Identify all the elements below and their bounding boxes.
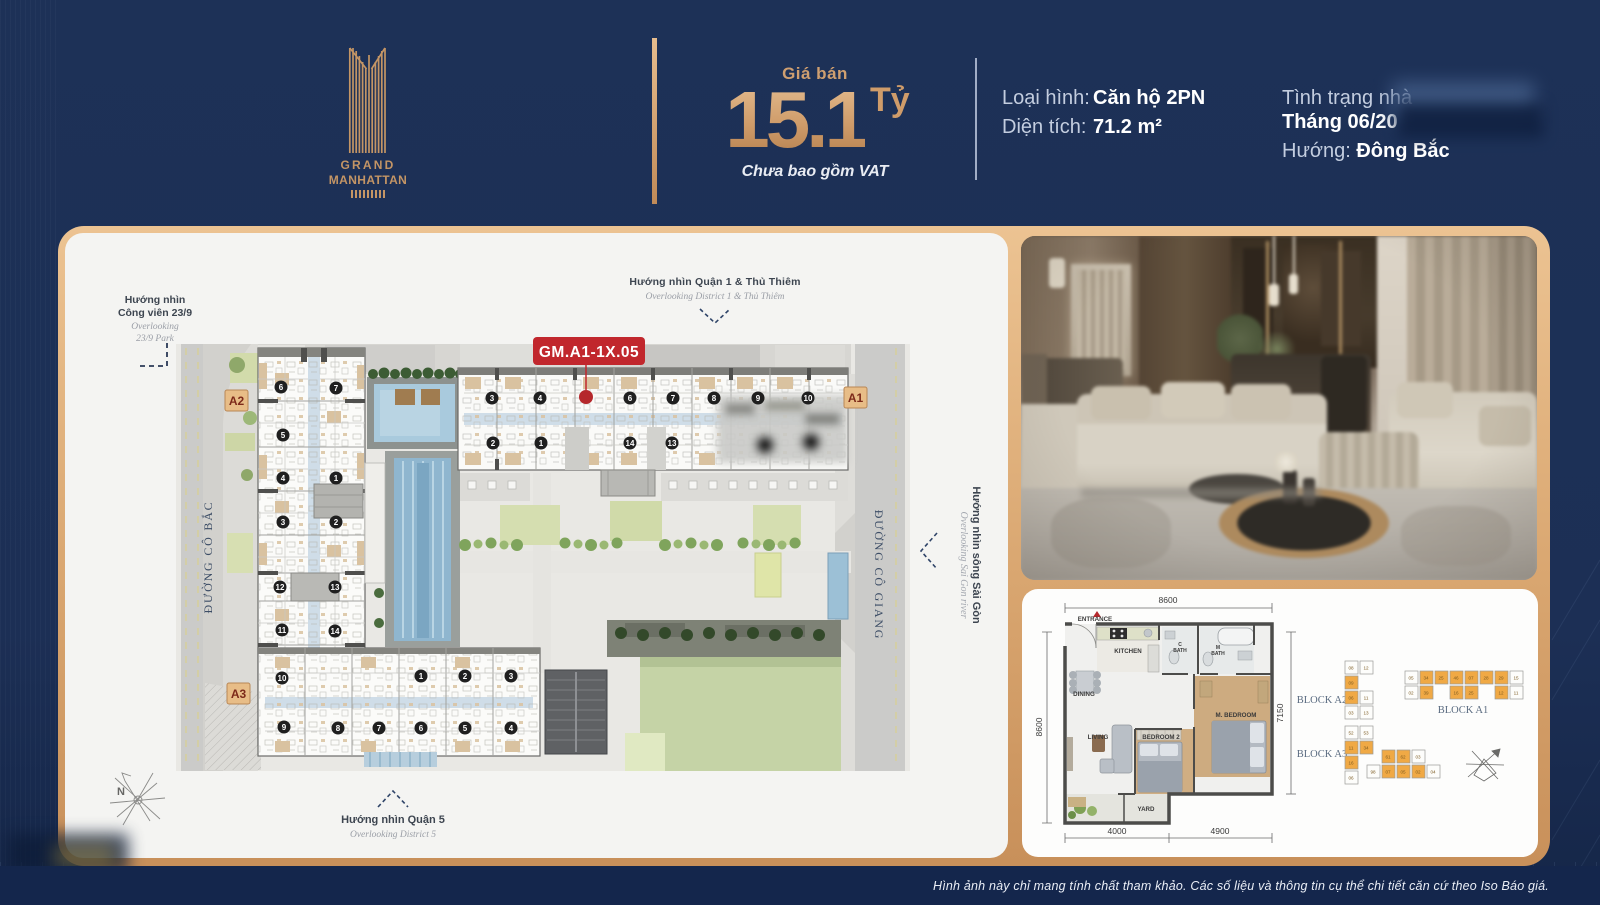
- svg-text:3: 3: [281, 518, 286, 527]
- svg-text:61: 61: [1385, 755, 1391, 760]
- svg-text:28: 28: [1483, 676, 1489, 681]
- svg-text:07: 07: [1385, 770, 1391, 775]
- svg-text:11: 11: [278, 626, 287, 635]
- svg-text:4: 4: [281, 474, 286, 483]
- svg-text:9: 9: [756, 394, 761, 403]
- svg-text:04: 04: [1430, 770, 1436, 775]
- svg-text:1: 1: [539, 439, 544, 448]
- svg-text:62: 62: [1400, 755, 1406, 760]
- svg-text:05: 05: [1408, 676, 1414, 681]
- svg-text:4: 4: [509, 724, 514, 733]
- svg-text:52: 52: [1348, 731, 1354, 736]
- svg-text:4900: 4900: [1211, 826, 1230, 836]
- svg-text:4000: 4000: [1108, 826, 1127, 836]
- svg-text:Hướng nhìn Quận 1 & Thủ Thiêm: Hướng nhìn Quận 1 & Thủ Thiêm: [629, 276, 800, 288]
- svg-text:11: 11: [1364, 696, 1369, 701]
- svg-text:Overlooking District 1 & Thủ T: Overlooking District 1 & Thủ Thiêm: [645, 292, 784, 302]
- svg-text:8: 8: [336, 724, 341, 733]
- svg-text:Overlooking: Overlooking: [131, 322, 179, 332]
- svg-text:ĐƯỜNG CÔ GIANG: ĐƯỜNG CÔ GIANG: [872, 510, 886, 641]
- svg-text:1: 1: [419, 672, 424, 681]
- svg-text:12: 12: [1498, 691, 1504, 696]
- svg-text:GRAND: GRAND: [341, 158, 396, 172]
- svg-text:13: 13: [331, 583, 340, 592]
- svg-text:A1: A1: [848, 391, 864, 405]
- svg-text:13: 13: [668, 439, 677, 448]
- svg-text:M. BEDROOM: M. BEDROOM: [1216, 712, 1257, 719]
- svg-text:53: 53: [1363, 731, 1369, 736]
- svg-text:02: 02: [1415, 770, 1421, 775]
- svg-text:GM.A1-1X.05: GM.A1-1X.05: [539, 344, 639, 361]
- svg-text:Hướng nhìn Quận 5: Hướng nhìn Quận 5: [341, 814, 445, 826]
- svg-text:6: 6: [419, 724, 424, 733]
- svg-text:Hướng nhìn: Hướng nhìn: [125, 294, 186, 306]
- svg-text:16: 16: [1453, 691, 1459, 696]
- svg-text:BATH: BATH: [1211, 651, 1225, 657]
- svg-text:N: N: [117, 786, 125, 798]
- svg-text:39: 39: [1423, 691, 1429, 696]
- svg-text:3: 3: [490, 394, 495, 403]
- svg-text:3: 3: [509, 672, 514, 681]
- svg-text:BATH: BATH: [1173, 648, 1187, 654]
- svg-text:Công viên 23/9: Công viên 23/9: [118, 307, 192, 319]
- svg-text:BLOCK A3: BLOCK A3: [1297, 749, 1347, 760]
- svg-text:10: 10: [278, 674, 287, 683]
- svg-text:5: 5: [463, 724, 468, 733]
- svg-text:8600: 8600: [1159, 595, 1178, 605]
- svg-text:02: 02: [1408, 691, 1414, 696]
- svg-text:11: 11: [1349, 746, 1354, 751]
- svg-text:BEDROOM 2: BEDROOM 2: [1142, 734, 1180, 741]
- svg-text:15: 15: [1513, 676, 1519, 681]
- svg-text:1: 1: [334, 474, 339, 483]
- svg-text:03: 03: [1348, 711, 1354, 716]
- svg-text:Overlooking District 5: Overlooking District 5: [350, 830, 436, 840]
- svg-text:BLOCK A2: BLOCK A2: [1297, 695, 1347, 706]
- svg-text:11: 11: [1514, 691, 1519, 696]
- svg-text:2: 2: [463, 672, 468, 681]
- svg-text:06: 06: [1348, 776, 1354, 781]
- svg-text:10: 10: [804, 394, 813, 403]
- svg-text:LIVING: LIVING: [1088, 734, 1109, 741]
- svg-text:03: 03: [1415, 755, 1421, 760]
- svg-text:6: 6: [628, 394, 633, 403]
- svg-text:25: 25: [1468, 691, 1474, 696]
- svg-text:98: 98: [1370, 770, 1376, 775]
- svg-text:16: 16: [1348, 761, 1354, 766]
- svg-text:ĐƯỜNG CÔ BẮC: ĐƯỜNG CÔ BẮC: [200, 501, 215, 614]
- svg-text:4: 4: [538, 394, 543, 403]
- svg-text:34: 34: [1423, 676, 1429, 681]
- svg-text:06: 06: [1348, 696, 1354, 701]
- svg-text:7: 7: [377, 724, 382, 733]
- svg-text:05: 05: [1400, 770, 1406, 775]
- svg-text:7: 7: [334, 384, 339, 393]
- svg-text:46: 46: [1453, 676, 1459, 681]
- svg-text:8: 8: [712, 394, 717, 403]
- svg-text:MANHATTAN: MANHATTAN: [329, 173, 407, 187]
- svg-text:A2: A2: [229, 394, 245, 408]
- svg-text:YARD: YARD: [1138, 806, 1155, 813]
- svg-text:8600: 8600: [1034, 717, 1044, 736]
- svg-text:12: 12: [1363, 666, 1369, 671]
- svg-text:13: 13: [1363, 711, 1369, 716]
- svg-text:14: 14: [626, 439, 635, 448]
- svg-text:BLOCK A1: BLOCK A1: [1438, 705, 1488, 716]
- svg-text:7150: 7150: [1275, 703, 1285, 722]
- svg-text:9: 9: [282, 723, 287, 732]
- svg-text:14: 14: [331, 627, 340, 636]
- svg-text:DINING: DINING: [1073, 691, 1095, 698]
- svg-text:A3: A3: [231, 687, 247, 701]
- svg-text:23/9 Park: 23/9 Park: [136, 334, 175, 344]
- svg-text:2: 2: [491, 439, 496, 448]
- svg-text:34: 34: [1363, 746, 1369, 751]
- svg-text:6: 6: [279, 383, 284, 392]
- svg-text:29: 29: [1498, 676, 1504, 681]
- svg-text:5: 5: [281, 431, 286, 440]
- svg-text:09: 09: [1348, 681, 1354, 686]
- svg-text:07: 07: [1468, 676, 1474, 681]
- svg-text:Hướng nhìn sông Sài Gòn: Hướng nhìn sông Sài Gòn: [970, 486, 982, 624]
- svg-text:KITCHEN: KITCHEN: [1114, 648, 1142, 655]
- svg-text:25: 25: [1438, 676, 1444, 681]
- svg-text:Overlooking Sai Gon river: Overlooking Sai Gon river: [958, 512, 969, 619]
- svg-text:12: 12: [276, 583, 285, 592]
- svg-text:08: 08: [1348, 666, 1354, 671]
- svg-text:2: 2: [334, 518, 339, 527]
- svg-text:7: 7: [671, 394, 676, 403]
- svg-text:ENTRANCE: ENTRANCE: [1078, 616, 1112, 623]
